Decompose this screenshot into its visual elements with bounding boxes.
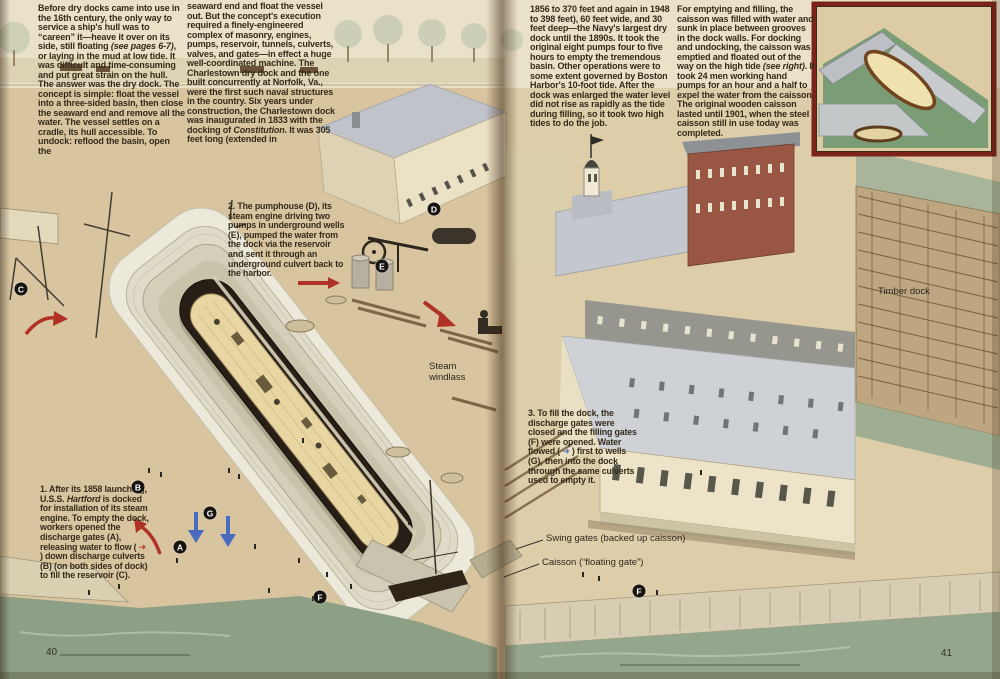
label-caisson: Caisson (“floating gate”) [542, 557, 643, 568]
article-column-3: 1856 to 370 feet and again in 1948 to 39… [530, 5, 676, 129]
page-gutter [486, 0, 518, 679]
article-column-1: Before dry docks came into use in the 16… [38, 4, 185, 156]
label-steam-windlass: Steam windlass [429, 361, 465, 383]
inset-diagram [814, 4, 994, 154]
label-swing-gates: Swing gates (backed up caisson) [546, 533, 685, 544]
caption-3-filling: 3. To fill the dock, the discharge gates… [528, 409, 642, 486]
book-spread-dry-dock: { "colors": { "paper": "#d8c59f", "text"… [0, 0, 1000, 679]
label-timber-dock: Timber dock [878, 286, 930, 297]
timber-dock-structure [856, 148, 1000, 470]
caption-2-pumphouse: 2. The pumphouse (D), its steam engine d… [228, 202, 347, 279]
caisson-floated-out [855, 127, 901, 141]
page-number-left: 40 [46, 647, 57, 658]
article-column-2: seaward end and float the vessel out. Bu… [187, 2, 338, 145]
brick-building [688, 144, 794, 266]
caption-1-hartford: 1. After its 1858 launching, U.S.S. Hart… [40, 485, 150, 581]
article-column-4: For emptying and filling, the caisson wa… [677, 5, 815, 138]
page-number-right: 41 [941, 648, 952, 659]
